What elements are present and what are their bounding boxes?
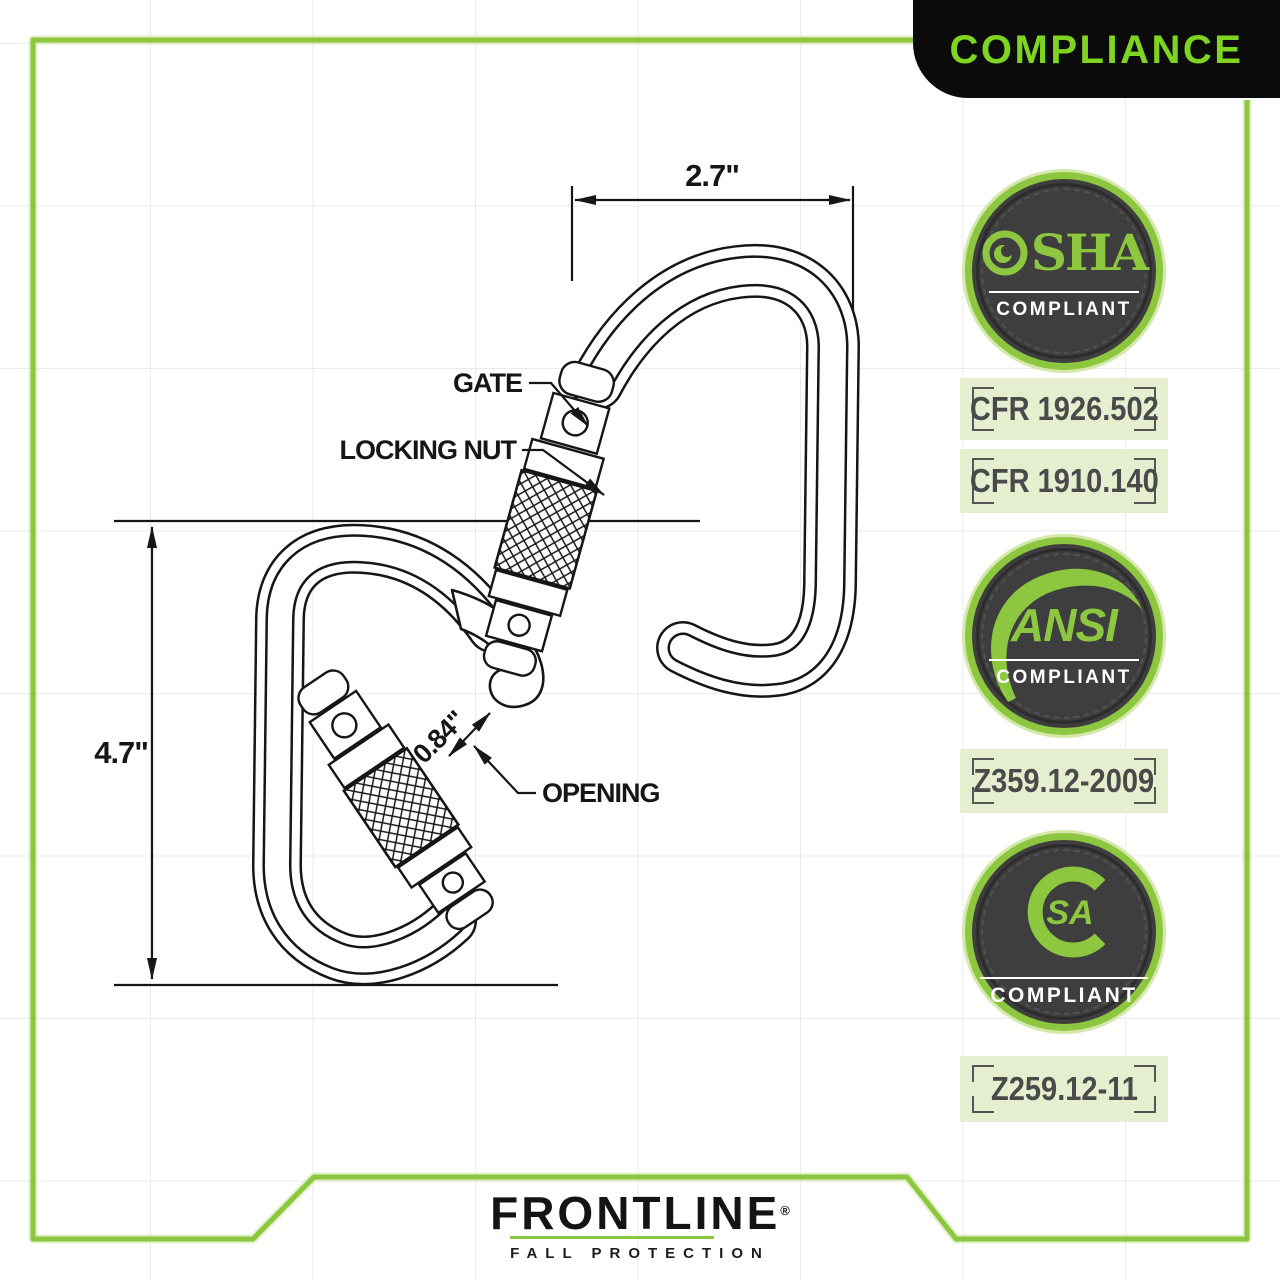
plate-cfr-1910-140: CFR 1910.140 (960, 449, 1168, 513)
csa-divider (980, 977, 1148, 979)
frontline-brand-text: FRONTLINE® (490, 1190, 790, 1236)
opening-label: OPENING (542, 778, 660, 808)
ansi-swoosh-icon (972, 544, 1156, 728)
plate-text: CFR 1926.502 (970, 390, 1159, 428)
registered-mark-icon: ® (780, 1203, 790, 1218)
plate-text: Z259.12-11 (991, 1070, 1138, 1108)
ansi-wordmark: ANSI (972, 602, 1156, 648)
osha-divider (989, 291, 1139, 293)
frontline-tagline: FALL PROTECTION (510, 1245, 770, 1262)
ansi-compliant-text: COMPLIANT (972, 667, 1156, 689)
gate-assembly-open (283, 659, 508, 941)
compliance-banner: COMPLIANCE (913, 0, 1280, 98)
plate-z359-12-2009: Z359.12-2009 (960, 749, 1168, 813)
osha-compliant-badge: SHA COMPLIANT (965, 172, 1163, 370)
compliance-banner-title: COMPLIANCE (950, 26, 1244, 73)
plate-z259-12-11: Z259.12-11 (960, 1056, 1168, 1122)
osha-wordmark: SHA (972, 229, 1156, 277)
osha-compliant-text: COMPLIANT (972, 299, 1156, 321)
logo-green-rule (510, 1236, 714, 1239)
ansi-compliant-badge: ANSI COMPLIANT (965, 537, 1163, 735)
dim-height-label: 4.7" (94, 735, 148, 770)
gate-label: GATE (453, 368, 522, 398)
carabiner-closed-drawing (469, 271, 833, 682)
dim-opening-label: 0.84" (407, 705, 471, 769)
ansi-divider (989, 659, 1139, 661)
plate-text: Z359.12-2009 (974, 762, 1155, 800)
csa-monogram-text: SA (1046, 894, 1093, 932)
osha-wordmark-text: SHA (1031, 229, 1147, 277)
csa-compliant-text: COMPLIANT (972, 984, 1156, 1008)
frontline-wordmark: FRONTLINE (490, 1187, 780, 1239)
locking-nut-label: LOCKING NUT (340, 435, 518, 465)
compliance-infographic: { "banner": { "label": "COMPLIANCE" }, "… (0, 0, 1280, 1280)
dim-width-label: 2.7" (685, 158, 739, 193)
frontline-logo: FRONTLINE® FALL PROTECTION (0, 1190, 1280, 1262)
csa-compliant-badge: SA COMPLIANT (965, 833, 1163, 1031)
csa-monogram-icon: SA (1014, 862, 1124, 972)
plate-text: CFR 1910.140 (970, 462, 1159, 500)
osha-swirl-o-icon (981, 229, 1029, 277)
plate-cfr-1926-502: CFR 1926.502 (960, 378, 1168, 440)
